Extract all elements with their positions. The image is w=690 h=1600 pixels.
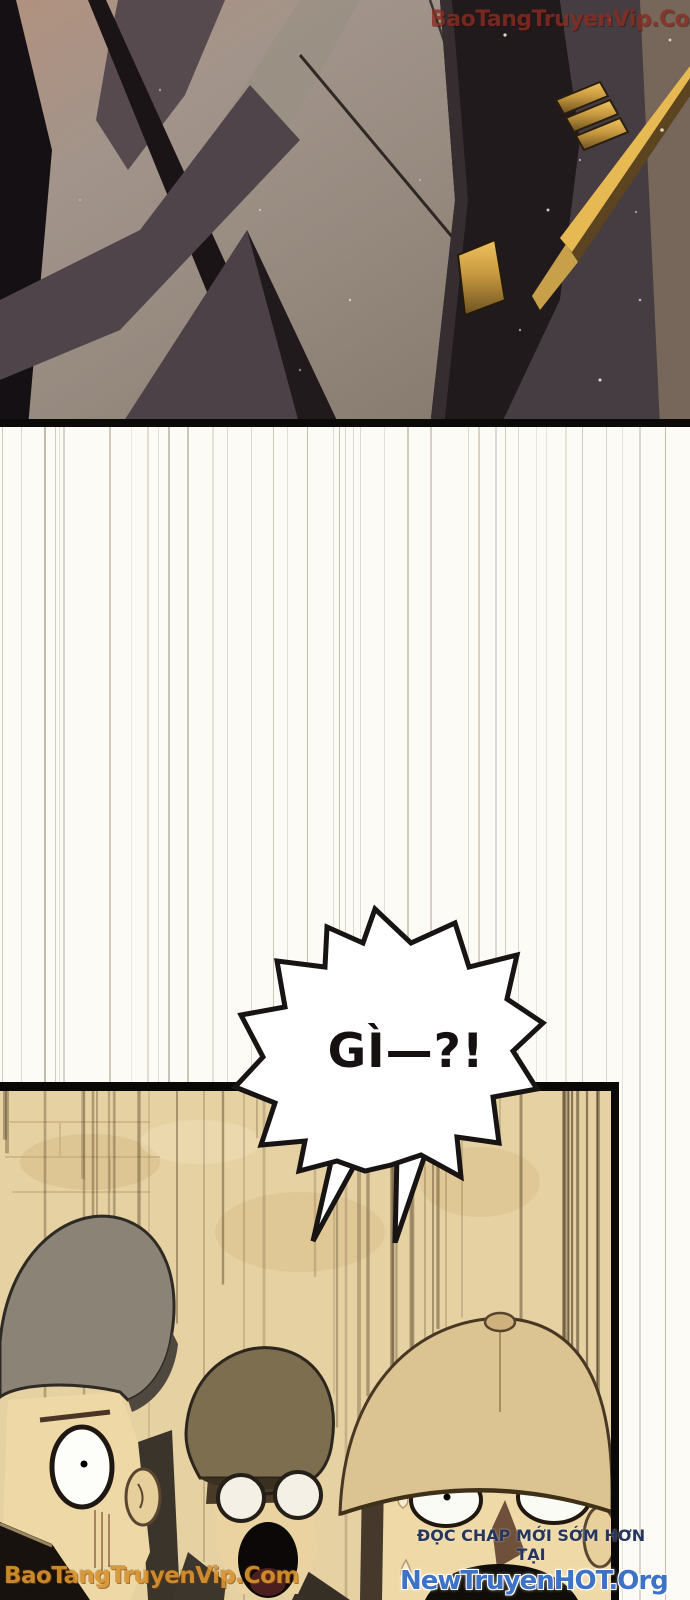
panel-top-border	[0, 419, 690, 427]
comic-page: BaoTangTruyenVip.Com	[0, 0, 690, 1600]
speed-line	[622, 427, 623, 1600]
panel-bottom-border-right	[611, 1082, 619, 1600]
promo-text-line1: ĐỌC CHAP MỚI SỚM HƠN TẠI	[400, 1526, 662, 1564]
promo-text-line2: NewTruyenHOT.Org	[400, 1566, 662, 1596]
panel-top-artwork	[0, 0, 690, 427]
speed-line	[665, 427, 666, 1600]
speech-bubble-text: GÌ—?!	[276, 1022, 536, 1086]
speed-line	[639, 427, 641, 1600]
promo-text: ĐỌC CHAP MỚI SỚM HƠN TẠI NewTruyenHOT.Or…	[400, 1526, 662, 1596]
dark-coat-mass	[430, 0, 660, 427]
